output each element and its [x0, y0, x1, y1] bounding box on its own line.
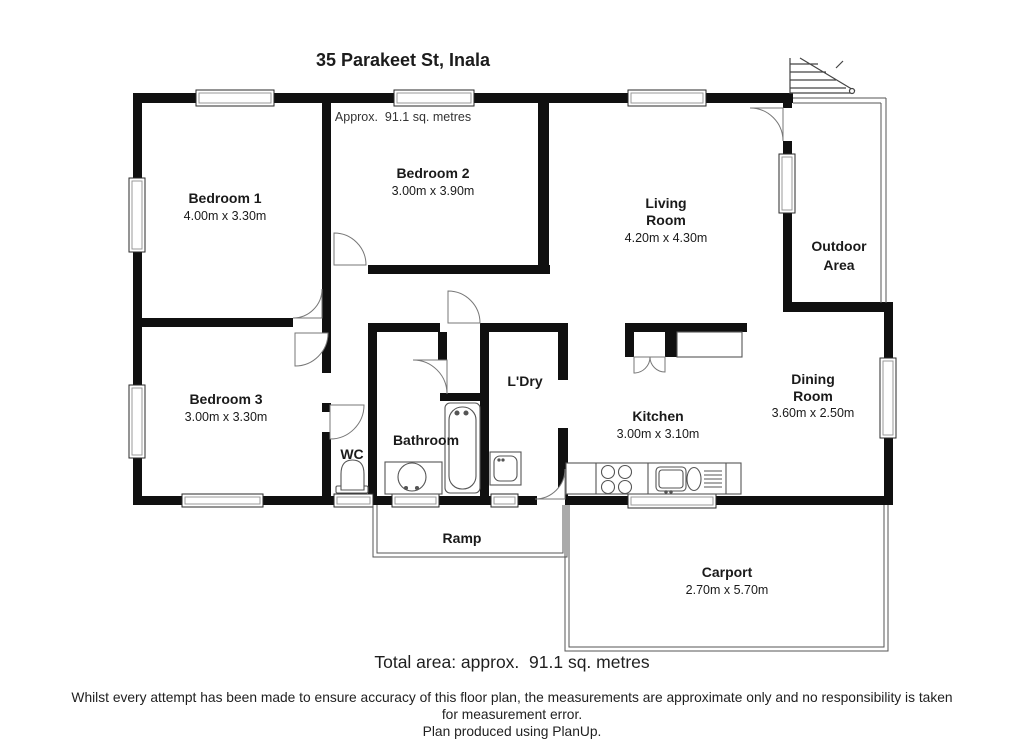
outdoor-door-arc	[750, 108, 783, 141]
washing-machine	[490, 452, 521, 485]
dining-room-dims: 3.60m x 2.50m	[772, 406, 855, 420]
disclaimer-line2: for measurement error.	[0, 707, 1024, 722]
wc-door-arc	[330, 405, 364, 439]
laundry-label: L'Dry	[507, 373, 542, 389]
bedroom3-label: Bedroom 3	[189, 391, 262, 407]
total-area-text: Total area: approx. 91.1 sq. metres	[0, 652, 1024, 673]
wc-label: WC	[340, 446, 363, 462]
window	[628, 90, 706, 106]
entry-steps-icon	[790, 58, 855, 94]
room-labels: Bedroom 1 4.00m x 3.30m Bedroom 2 3.00m …	[184, 165, 867, 597]
carport-dims: 2.70m x 5.70m	[686, 583, 769, 597]
bathtub	[445, 403, 480, 493]
window	[628, 494, 716, 508]
bathroom-label: Bathroom	[393, 432, 459, 448]
dining-room-label-line1: Dining	[791, 371, 835, 387]
closet-door-left-arc	[634, 357, 650, 373]
ramp-label: Ramp	[443, 530, 482, 546]
living-room-label-line1: Living	[645, 195, 686, 211]
kitchen-dims: 3.00m x 3.10m	[617, 427, 700, 441]
window	[196, 90, 274, 106]
bathroom-door-arc	[413, 360, 447, 394]
floor-plan-drawing: Bedroom 1 4.00m x 3.30m Bedroom 2 3.00m …	[0, 0, 1024, 745]
window	[182, 494, 263, 507]
window	[880, 358, 896, 438]
window	[392, 494, 439, 507]
window	[491, 494, 518, 507]
bedroom1-label: Bedroom 1	[188, 190, 261, 206]
bedroom2-label: Bedroom 2	[396, 165, 469, 181]
window	[129, 178, 145, 252]
outdoor-area-label-line1: Outdoor	[811, 238, 867, 254]
toilet	[336, 460, 368, 493]
living-room-dims: 4.20m x 4.30m	[625, 231, 708, 245]
closet-door-right-arc	[650, 357, 665, 372]
bedroom1-dims: 4.00m x 3.30m	[184, 209, 267, 223]
closet-bench	[677, 332, 742, 357]
disclaimer-line1: Whilst every attempt has been made to en…	[0, 690, 1024, 705]
window	[394, 90, 474, 106]
kitchen-label: Kitchen	[632, 408, 683, 424]
basin	[385, 462, 442, 494]
hall-door-arc	[448, 291, 480, 323]
windows	[129, 90, 896, 508]
window	[779, 154, 795, 213]
living-room-label-line2: Room	[646, 212, 686, 228]
outdoor-area-label-line2: Area	[823, 257, 854, 273]
bedroom3-dims: 3.00m x 3.30m	[185, 410, 268, 424]
bedroom2-door-arc	[334, 233, 366, 265]
carport-label: Carport	[702, 564, 753, 580]
window	[334, 494, 373, 507]
plan-credit: Plan produced using PlanUp.	[0, 724, 1024, 739]
bedroom2-dims: 3.00m x 3.90m	[392, 184, 475, 198]
bedroom1-door-arc	[293, 289, 322, 318]
dining-room-label-line2: Room	[793, 388, 833, 404]
window	[129, 385, 145, 458]
